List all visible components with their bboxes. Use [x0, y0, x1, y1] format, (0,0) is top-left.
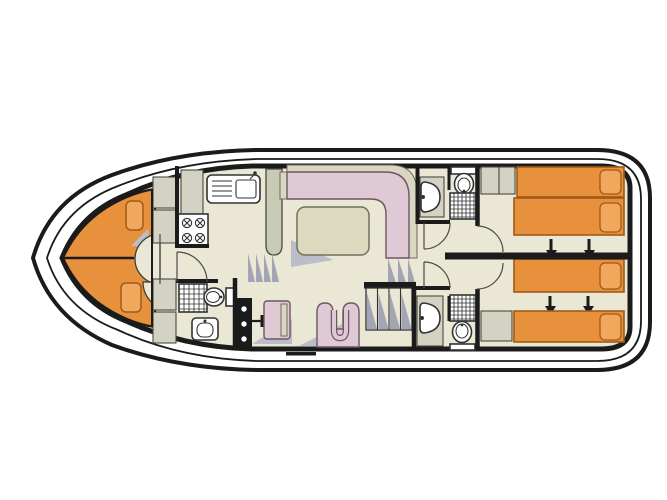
toilet-dot — [461, 324, 464, 327]
washbasin-faucet — [204, 320, 207, 323]
wardrobe — [153, 210, 176, 243]
pillow — [600, 203, 621, 232]
wardrobe — [499, 167, 515, 194]
sofa-armrest — [280, 172, 287, 199]
pillow — [600, 314, 621, 340]
pillow — [600, 263, 621, 289]
toilet-dot — [220, 296, 223, 299]
boarding-step-mark — [286, 352, 316, 356]
galley-sink-unit — [207, 175, 260, 203]
houseboat-floor-plan — [0, 0, 667, 500]
galley-counter — [181, 170, 203, 214]
helm-seat-backrest — [281, 304, 287, 336]
console-dot — [241, 336, 246, 341]
toilet-dot — [463, 190, 466, 193]
pillow — [600, 170, 621, 194]
toilet-cistern — [450, 344, 475, 350]
wardrobe — [481, 167, 499, 194]
bow-seat-cushion — [126, 201, 143, 230]
wardrobe — [153, 177, 176, 208]
bow-seat-cushion — [121, 283, 141, 312]
console-dot — [241, 306, 246, 311]
washbasin-faucet — [421, 195, 425, 199]
wardrobe — [153, 312, 176, 343]
sink-faucet-dot — [253, 171, 257, 175]
wardrobe — [481, 311, 512, 341]
washbasin-faucet — [420, 316, 424, 320]
floor-plan-canvas — [0, 0, 667, 500]
console-dot — [241, 321, 246, 326]
wardrobe — [153, 279, 176, 310]
shower — [179, 284, 207, 312]
saloon-table — [297, 207, 369, 255]
